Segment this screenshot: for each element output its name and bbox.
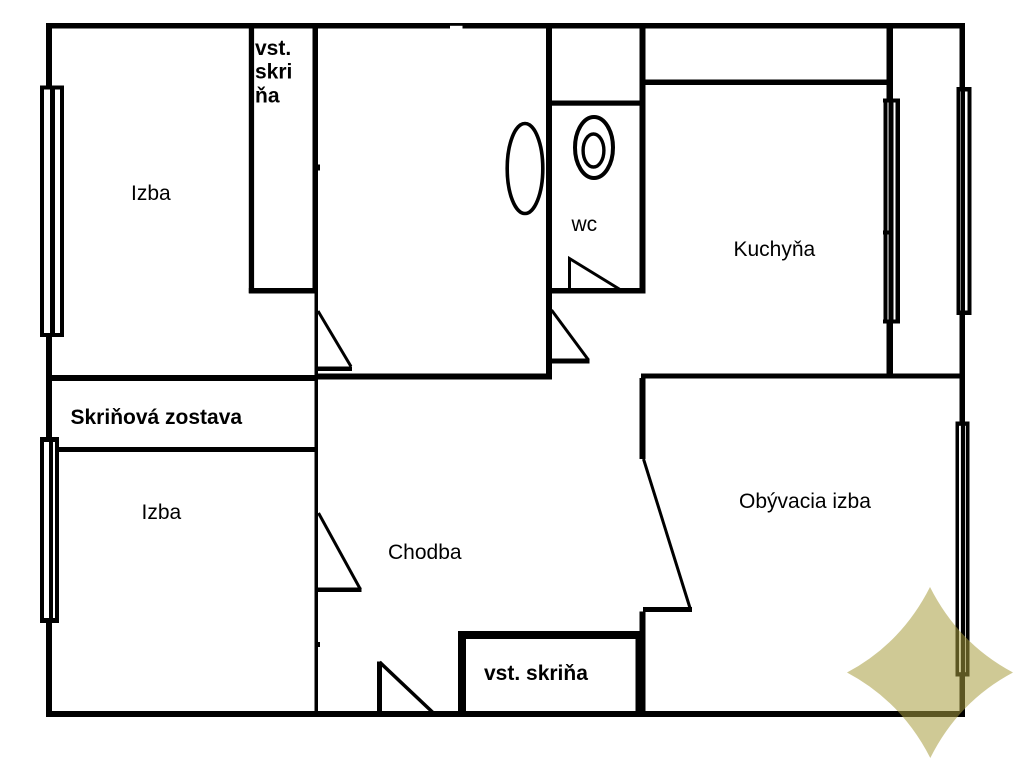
svg-text:Izba: Izba xyxy=(142,501,182,524)
svg-text:ňa: ňa xyxy=(255,85,280,108)
svg-text:vst.: vst. xyxy=(255,37,291,60)
svg-text:Kuchyňa: Kuchyňa xyxy=(734,238,816,261)
svg-text:Obývacia izba: Obývacia izba xyxy=(739,490,871,513)
svg-text:wc: wc xyxy=(571,213,598,236)
svg-text:Chodba: Chodba xyxy=(388,541,462,564)
svg-text:Skriňová zostava: Skriňová zostava xyxy=(71,406,243,429)
svg-text:Izba: Izba xyxy=(131,182,171,205)
svg-text:vst. skriňa: vst. skriňa xyxy=(484,662,588,685)
svg-text:skri: skri xyxy=(255,61,292,84)
